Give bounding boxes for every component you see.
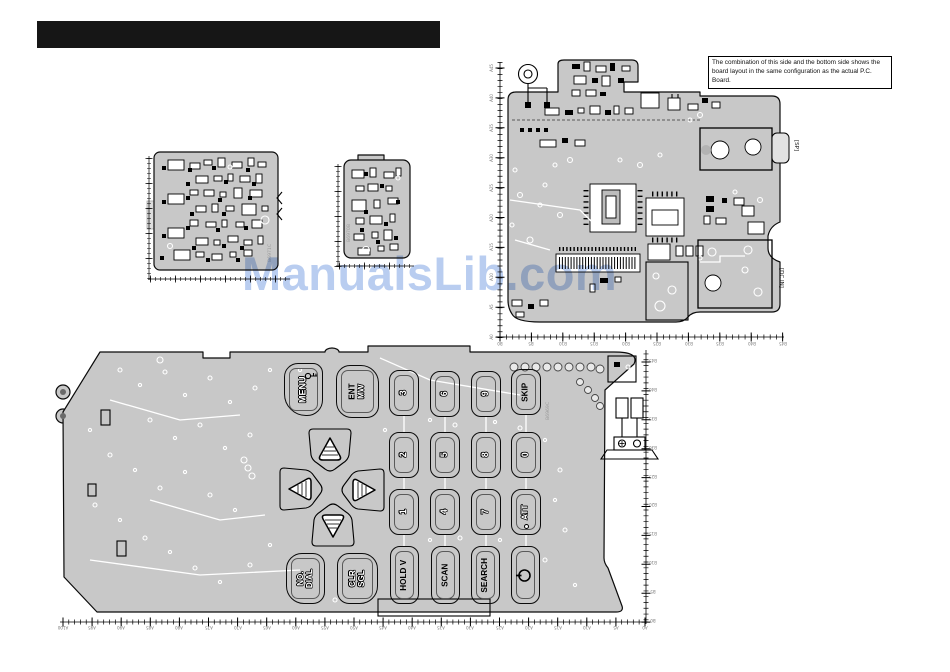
svg-text:A55: A55 — [321, 625, 329, 630]
key-7-label: 7 — [481, 509, 490, 514]
keypad-board-silkscreen: B6969C — [545, 402, 551, 420]
svg-text:A5: A5 — [489, 304, 494, 310]
key-6-label: 6 — [440, 391, 449, 396]
key-power — [511, 546, 540, 604]
small-board-silkscreen: B6970B — [346, 224, 352, 242]
svg-text:A25: A25 — [489, 184, 494, 192]
key-menu: MENU — [284, 363, 323, 416]
svg-text:B20: B20 — [622, 341, 630, 346]
svg-text:B10: B10 — [649, 560, 657, 565]
key-2-label: 2 — [399, 452, 408, 457]
svg-text:A15: A15 — [554, 625, 562, 630]
key-scan-label: SCAN — [441, 563, 450, 586]
small-board: B6970B — [336, 155, 414, 267]
svg-text:A75: A75 — [205, 625, 213, 630]
key-4-label: 4 — [440, 509, 449, 514]
svg-text:A0: A0 — [489, 334, 494, 340]
key-hold-v-label: HOLD V — [400, 560, 409, 591]
key-clr-sgl: CLRSGL — [337, 553, 378, 604]
key-mw-label: MW — [358, 384, 367, 399]
svg-text:A40: A40 — [489, 94, 494, 102]
svg-text:A35: A35 — [437, 625, 445, 630]
key-search: SEARCH — [471, 546, 500, 604]
key-0: 0 — [511, 432, 541, 478]
svg-text:B25: B25 — [649, 474, 657, 479]
svg-text:B35: B35 — [649, 416, 657, 421]
key-6: 6 — [430, 371, 460, 417]
main-board: [SP] [DC IN] A45 A40 A — [489, 60, 799, 346]
svg-text:B30: B30 — [649, 445, 657, 450]
manual-page: The combination of this side and the bot… — [0, 0, 950, 672]
key-3: 3 — [389, 370, 419, 416]
key-hold-v: HOLD V — [390, 546, 419, 604]
svg-text:A85: A85 — [146, 625, 154, 630]
svg-text:A95: A95 — [88, 625, 96, 630]
svg-text:B0: B0 — [650, 618, 656, 623]
key-skip-label: SKIP — [522, 382, 531, 401]
dc-label: [DC IN] — [778, 268, 784, 288]
key-att: ATT — [511, 489, 541, 535]
svg-text:A30: A30 — [489, 154, 494, 162]
key-9: 9 — [471, 371, 501, 417]
svg-text:B45: B45 — [649, 358, 657, 363]
key-menu-label: MENU — [299, 376, 308, 403]
svg-text:A35: A35 — [489, 124, 494, 132]
svg-text:A60: A60 — [292, 625, 300, 630]
key-no-dial: NO.DIAL — [286, 553, 325, 604]
key-5-label: 5 — [440, 452, 449, 457]
key-4: 4 — [430, 489, 460, 535]
key-7: 7 — [471, 489, 501, 535]
key-scan: SCAN — [431, 546, 460, 604]
key-8: 8 — [471, 432, 501, 478]
svg-text:A15: A15 — [489, 243, 494, 251]
key-5: 5 — [430, 432, 460, 478]
svg-text:A65: A65 — [263, 625, 271, 630]
left-board: B6971C — [147, 152, 290, 280]
key-8-label: 8 — [481, 452, 490, 457]
svg-text:A20: A20 — [525, 625, 533, 630]
svg-text:A5: A5 — [613, 625, 619, 630]
key-skip: SKIP — [511, 369, 541, 415]
svg-text:A45: A45 — [379, 625, 387, 630]
svg-text:A30: A30 — [466, 625, 474, 630]
key-1: 1 — [389, 489, 419, 535]
svg-text:A70: A70 — [234, 625, 242, 630]
svg-text:B10: B10 — [559, 341, 567, 346]
key-sgl-label: SGL — [358, 570, 367, 587]
key-search-label: SEARCH — [481, 558, 490, 593]
key-att-label: ATT — [522, 504, 531, 519]
key-9-label: 9 — [481, 391, 490, 396]
svg-text:B20: B20 — [649, 502, 657, 507]
svg-text:B15: B15 — [649, 531, 657, 536]
svg-text:B30: B30 — [685, 341, 693, 346]
svg-text:A20: A20 — [489, 214, 494, 222]
key-ent-mw: ENTMW — [336, 365, 379, 418]
svg-text:A10: A10 — [489, 273, 494, 281]
key-2: 2 — [389, 432, 419, 478]
svg-text:A100: A100 — [57, 625, 68, 630]
svg-text:A90: A90 — [117, 625, 125, 630]
sp-label: [SP] — [793, 140, 799, 151]
key-dial-label: DIAL — [305, 569, 314, 588]
key-1-label: 1 — [399, 509, 408, 514]
svg-text:A50: A50 — [350, 625, 358, 630]
svg-text:A10: A10 — [583, 625, 591, 630]
svg-text:A45: A45 — [489, 64, 494, 72]
svg-text:A25: A25 — [496, 625, 504, 630]
svg-text:B0: B0 — [497, 341, 503, 346]
svg-text:A0: A0 — [642, 625, 648, 630]
speaker-symbol — [601, 398, 658, 459]
svg-text:B5: B5 — [528, 341, 534, 346]
svg-text:B15: B15 — [590, 341, 598, 346]
att-led-hole — [524, 524, 529, 529]
svg-text:B25: B25 — [653, 341, 661, 346]
svg-text:A40: A40 — [408, 625, 416, 630]
svg-text:B40: B40 — [748, 341, 756, 346]
key-3-label: 3 — [399, 390, 408, 395]
left-board-silkscreen: B6971C — [267, 244, 273, 262]
svg-text:B40: B40 — [649, 387, 657, 392]
key-0-label: 0 — [521, 452, 530, 457]
svg-text:A80: A80 — [175, 625, 183, 630]
power-icon — [514, 566, 537, 584]
svg-text:B5: B5 — [650, 589, 656, 594]
svg-text:B35: B35 — [716, 341, 724, 346]
svg-text:B45: B45 — [779, 341, 787, 346]
